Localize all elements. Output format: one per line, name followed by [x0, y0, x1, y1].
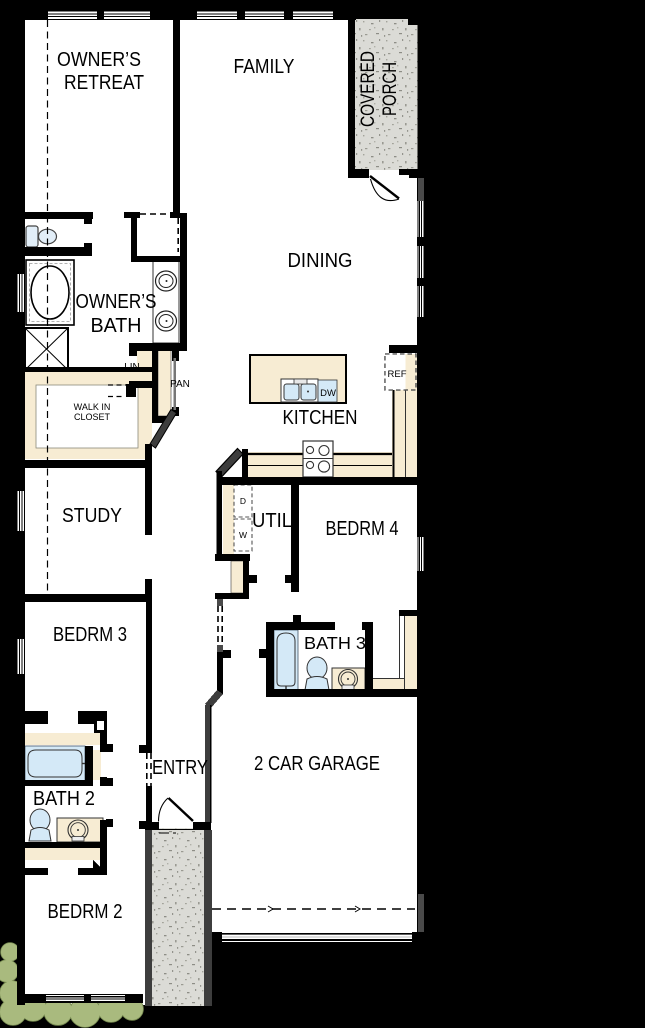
svg-text:BEDRM 3: BEDRM 3	[53, 624, 127, 646]
svg-text:D: D	[240, 496, 246, 506]
svg-text:UTIL: UTIL	[252, 510, 292, 532]
svg-text:COVERED: COVERED	[358, 51, 379, 127]
svg-text:2 CAR GARAGE: 2 CAR GARAGE	[254, 753, 380, 775]
svg-text:WALK IN: WALK IN	[74, 402, 111, 412]
svg-text:REF: REF	[388, 369, 407, 380]
svg-text:OWNER’S: OWNER’S	[57, 49, 141, 71]
svg-text:DW: DW	[320, 388, 336, 399]
svg-text:BEDRM 2: BEDRM 2	[48, 901, 123, 923]
svg-text:BATH 2: BATH 2	[33, 788, 95, 810]
svg-text:LIN: LIN	[124, 362, 140, 373]
svg-text:PAN: PAN	[170, 379, 190, 390]
svg-text:KITCHEN: KITCHEN	[283, 407, 358, 429]
svg-text:CLOSET: CLOSET	[74, 412, 111, 422]
svg-text:BEDRM 4: BEDRM 4	[326, 518, 399, 540]
svg-text:W: W	[239, 530, 247, 540]
svg-text:STUDY: STUDY	[62, 505, 122, 527]
svg-text:BATH: BATH	[91, 315, 142, 337]
svg-text:OWNER’S: OWNER’S	[76, 291, 157, 313]
svg-text:ENTRY: ENTRY	[152, 757, 208, 779]
svg-text:BATH 3: BATH 3	[304, 633, 366, 653]
svg-text:RETREAT: RETREAT	[64, 72, 144, 94]
svg-text:DINING: DINING	[288, 250, 353, 272]
svg-text:FAMILY: FAMILY	[234, 56, 295, 78]
svg-text:PORCH: PORCH	[380, 62, 401, 116]
